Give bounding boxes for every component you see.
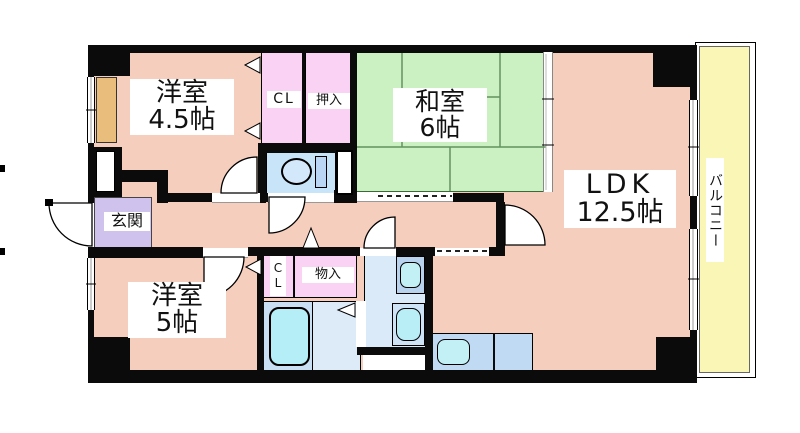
pipe-shaft (96, 77, 117, 143)
room-size: 6帖 (395, 115, 485, 141)
window-right-2 (689, 229, 698, 330)
window-right-1 (689, 100, 698, 196)
room-label-western2: 洋室 5帖 (128, 282, 226, 338)
ps-shaft-box (336, 150, 353, 195)
kitchen-sink (437, 339, 470, 365)
wall-west2-right (257, 247, 264, 372)
bathtub (269, 307, 310, 366)
room-label-ldk: LDK 12.5帖 (564, 170, 676, 228)
sliding-partition-tatami-ldk (543, 52, 553, 192)
room-name: 玄関 (106, 213, 148, 230)
wall-hall-top-1 (165, 193, 212, 202)
room-label-entrance: 玄関 (104, 212, 150, 231)
storage-name: 物入 (304, 268, 352, 282)
frame-caps (0, 165, 53, 255)
service-gap (363, 354, 425, 371)
pillar-bottom-right (656, 337, 697, 374)
wall-tatami-bottom (453, 193, 504, 202)
room-name: LDK (566, 171, 674, 199)
wall-bottom (88, 370, 697, 383)
wall-hall-bottom-2 (248, 247, 360, 256)
wall-left-4 (88, 310, 94, 337)
label-storage: 物入 (302, 267, 354, 283)
meter-box-niche (96, 151, 115, 192)
wall-right-a (690, 87, 697, 100)
doorway-western1 (212, 193, 260, 203)
doorway-toilet (268, 193, 334, 203)
room-name: 和室 (395, 89, 485, 115)
wall-washroom-bottom (357, 347, 427, 355)
doorway-washroom (360, 248, 396, 256)
label-closet-lower: CL (270, 256, 286, 296)
label-balcony: バルコニー (706, 158, 724, 262)
toilet-tank (315, 156, 327, 188)
label-closet-upper: CL (267, 91, 301, 108)
room-name: 洋室 (132, 80, 232, 107)
sliding-track-hall (435, 248, 489, 256)
doorway-western2 (203, 248, 248, 258)
entrance-opening (88, 203, 94, 247)
pillar-bottom-left (88, 337, 130, 373)
toilet-bowl (281, 158, 312, 185)
room-size: 5帖 (130, 310, 224, 337)
closet-name: CL (269, 92, 299, 107)
balcony-name: バルコニー (708, 159, 722, 261)
room-size: 4.5帖 (132, 107, 232, 134)
wall-door-stub (496, 202, 505, 254)
room-label-japanese: 和室 6帖 (393, 88, 487, 142)
kitchen-counter-divider (493, 333, 495, 371)
room-label-western1: 洋室 4.5帖 (130, 79, 234, 135)
washing-machine-drum (396, 308, 421, 341)
wall-right-b (690, 196, 697, 229)
floor-plan: 洋室 4.5帖 和室 6帖 LDK 12.5帖 洋室 5帖 玄関 CL 押入 C… (0, 0, 800, 433)
room-name: 洋室 (130, 283, 224, 310)
wall-hall-bottom-1 (88, 247, 203, 258)
washbasin-bowl (400, 262, 421, 288)
window-left-2 (87, 258, 95, 310)
wall-top (88, 45, 658, 53)
room-size: 12.5帖 (566, 199, 674, 227)
closet-name: CL (272, 257, 284, 295)
pillar-top-left (88, 45, 130, 76)
label-oshiire: 押入 (308, 93, 350, 109)
wall-left-1 (88, 53, 94, 77)
door-arc-entrance (49, 203, 92, 246)
pillar-top-right (653, 45, 697, 87)
bathroom-door-strip (356, 301, 366, 347)
bathroom-dressing-area (312, 301, 361, 372)
sliding-track-tatami (357, 192, 453, 202)
window-left-1 (87, 77, 95, 143)
closet-name: 押入 (310, 94, 348, 108)
